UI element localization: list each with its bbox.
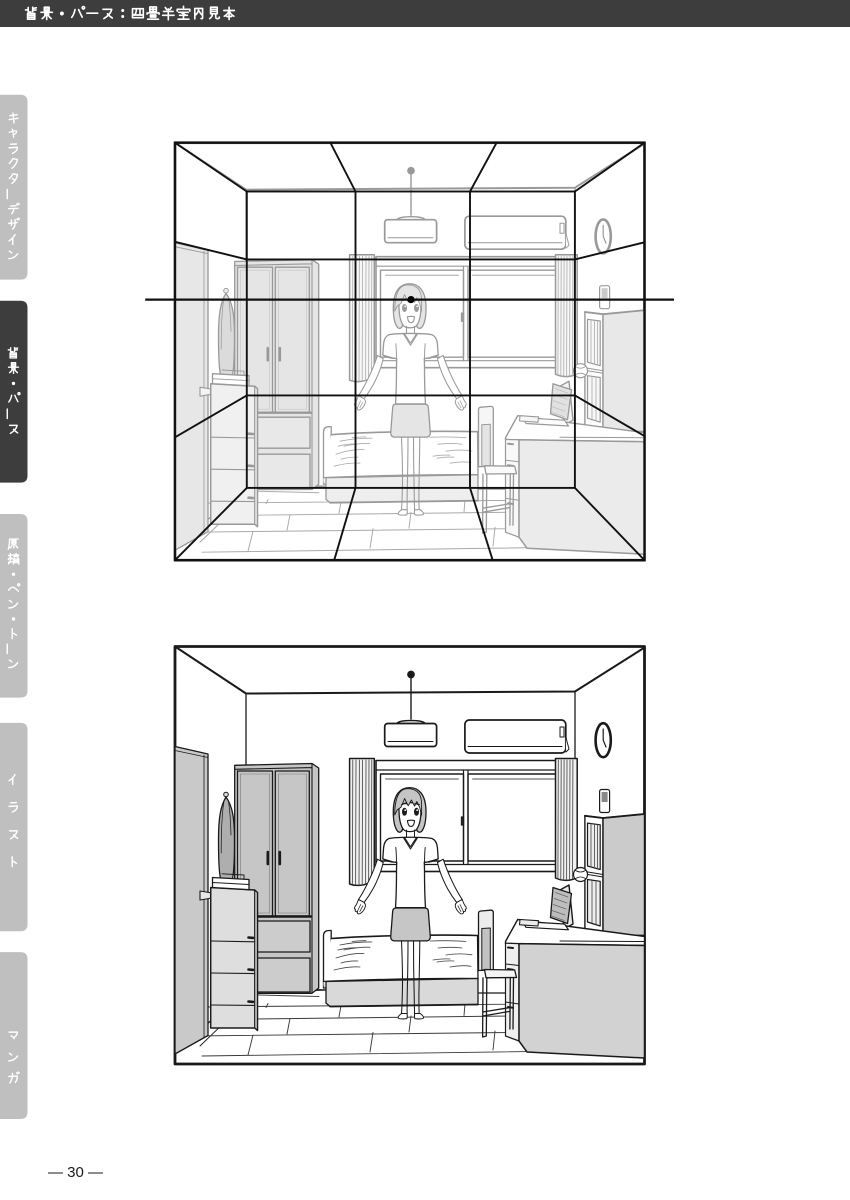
svg-text:— 30 —: — 30 — — [48, 1164, 103, 1181]
